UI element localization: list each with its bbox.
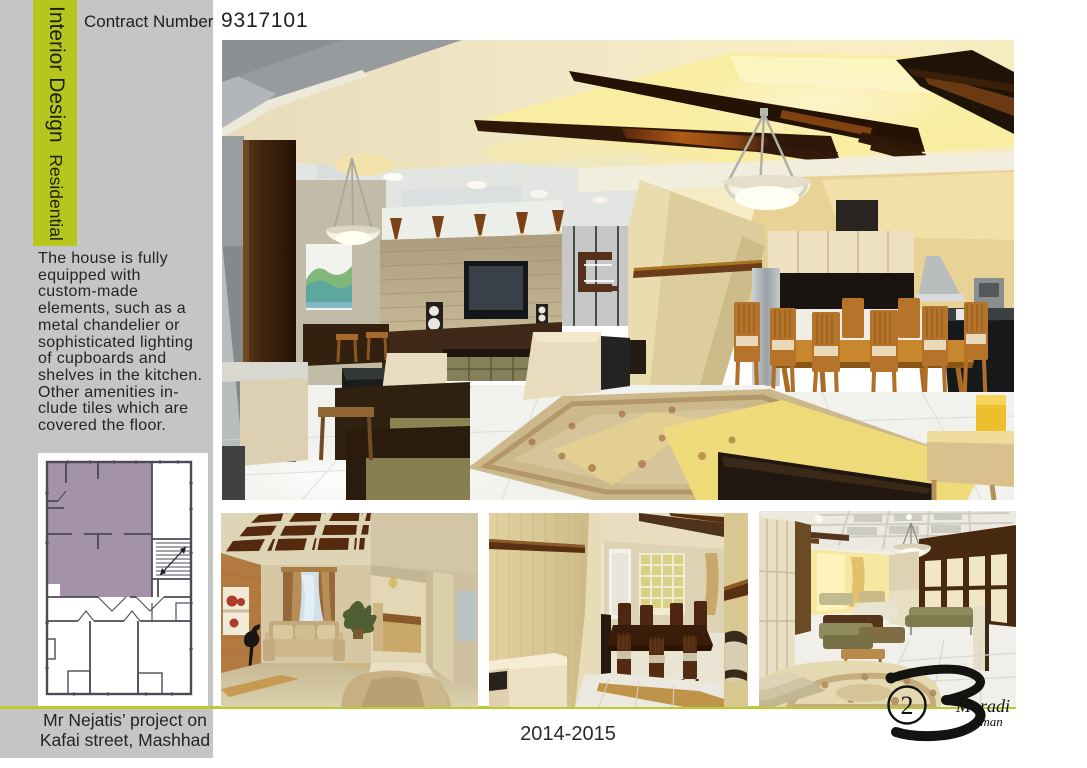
svg-text:Moradi: Moradi bbox=[955, 696, 1010, 716]
svg-text:Iman: Iman bbox=[975, 714, 1003, 729]
svg-text:2: 2 bbox=[901, 691, 914, 720]
